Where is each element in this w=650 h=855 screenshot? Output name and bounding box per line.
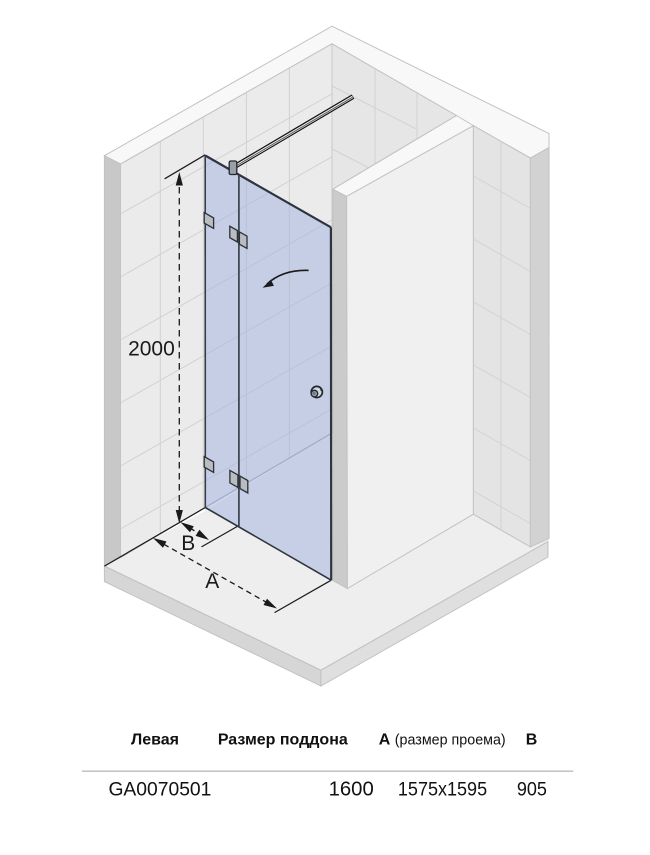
svg-text:905: 905 bbox=[517, 778, 547, 800]
svg-text:1575x1595: 1575x1595 bbox=[398, 778, 487, 800]
svg-text:Левая: Левая bbox=[131, 731, 179, 748]
svg-text:A: A bbox=[205, 570, 219, 593]
svg-text:B: B bbox=[181, 532, 195, 555]
svg-text:GA0070501: GA0070501 bbox=[108, 779, 211, 800]
svg-text:1600: 1600 bbox=[329, 778, 374, 800]
svg-text:А (размер проема): А (размер проема) bbox=[379, 731, 506, 748]
svg-text:В: В bbox=[526, 731, 538, 748]
svg-text:2000: 2000 bbox=[128, 338, 175, 361]
svg-text:Размер поддона: Размер поддона bbox=[218, 731, 348, 748]
